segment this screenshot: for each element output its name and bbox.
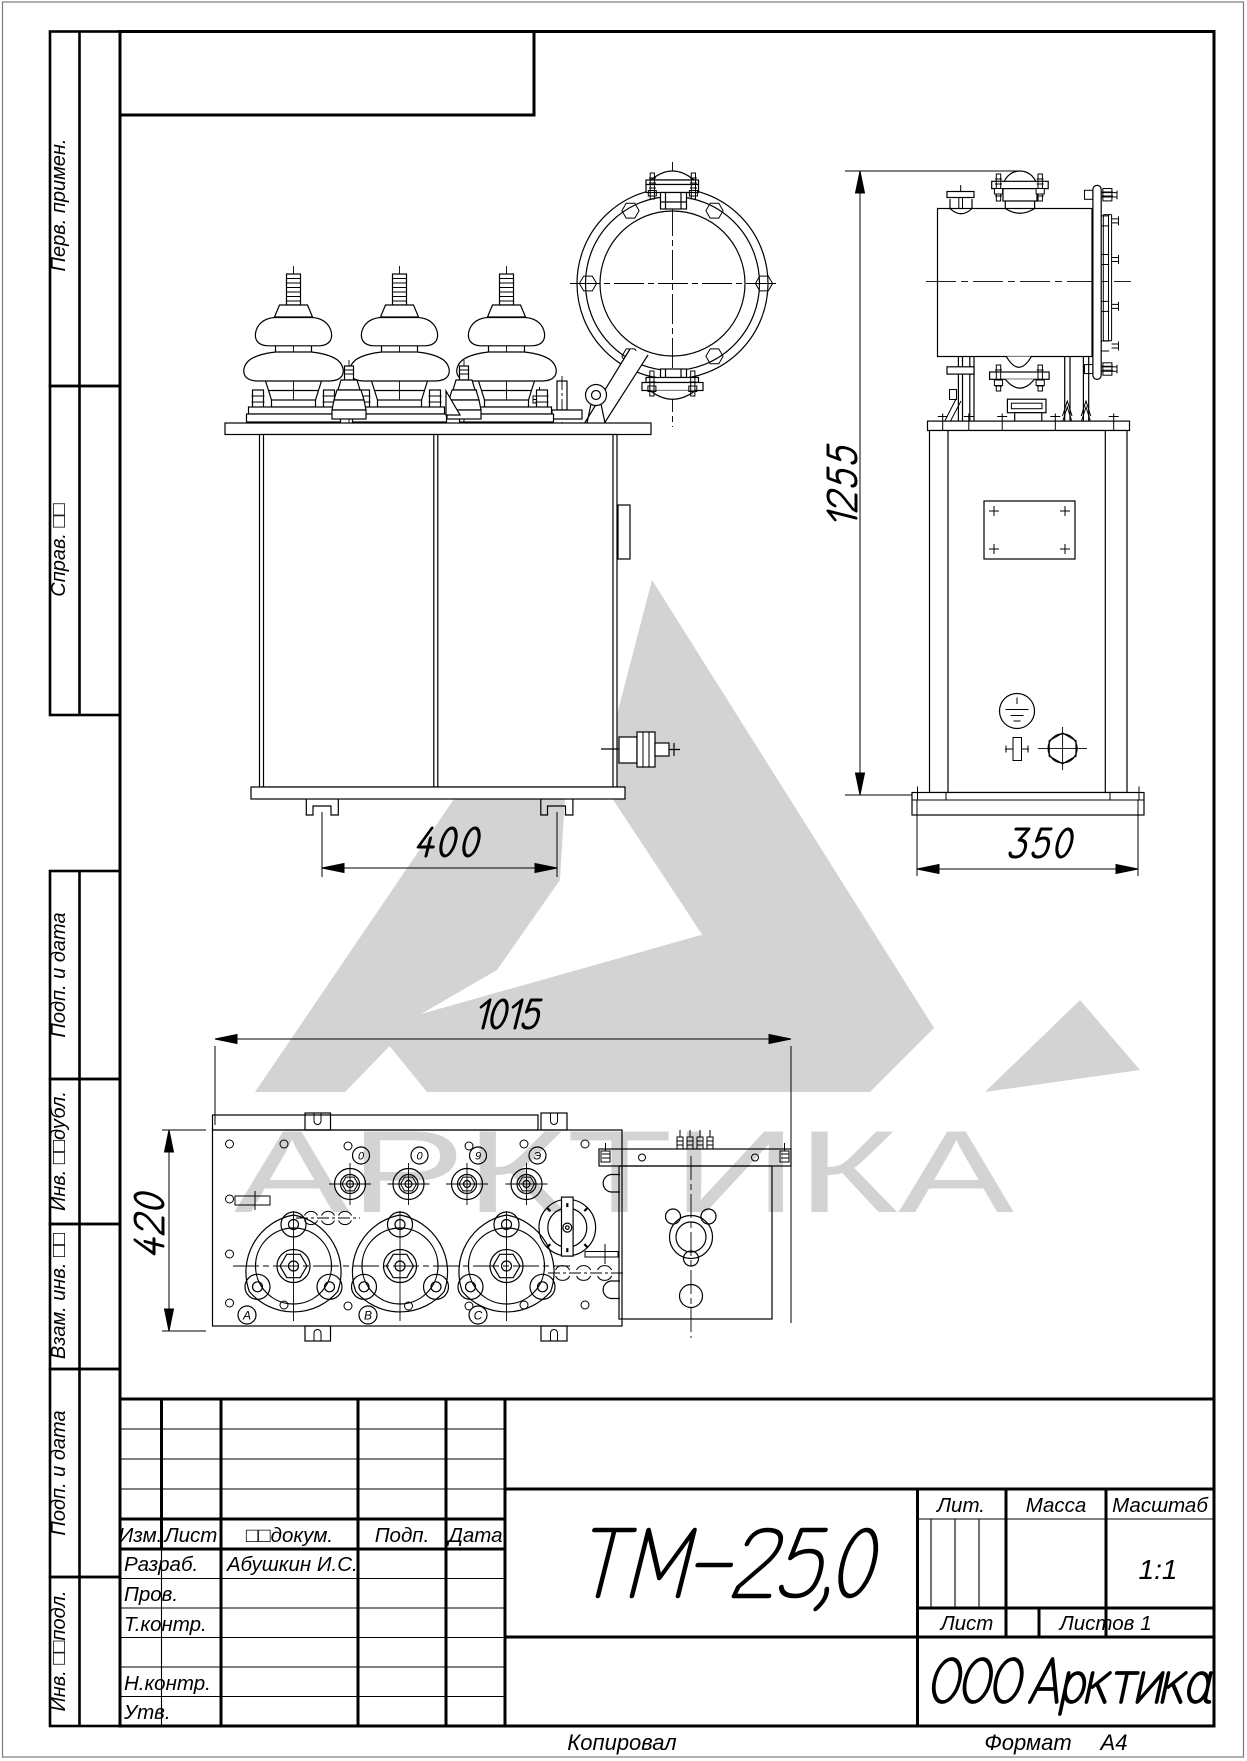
svg-text:Изм.: Изм. [119, 1524, 163, 1547]
svg-text:Лист: Лист [939, 1612, 994, 1635]
svg-text:Формат: Формат [984, 1730, 1071, 1755]
svg-text:Утв.: Утв. [123, 1701, 171, 1724]
svg-text:Н.контр.: Н.контр. [124, 1672, 211, 1695]
svg-text:Подп. и дата: Подп. и дата [48, 1410, 70, 1535]
svg-text:Лист: Лист [163, 1524, 218, 1547]
svg-text:1: 1 [1140, 1612, 1151, 1635]
svg-text:Пров.: Пров. [124, 1583, 178, 1606]
svg-text:Разраб.: Разраб. [124, 1553, 198, 1576]
svg-text:Инв. □□дубл.: Инв. □□дубл. [48, 1091, 70, 1211]
svg-text:Абушкин И.С.: Абушкин И.С. [225, 1553, 358, 1576]
svg-text:Копировал: Копировал [567, 1730, 676, 1755]
svg-text:1:1: 1:1 [1139, 1554, 1178, 1585]
svg-text:0: 0 [416, 1151, 423, 1163]
svg-text:Масса: Масса [1026, 1494, 1087, 1517]
svg-text:С: С [474, 1309, 483, 1323]
svg-text:Взам. инв. □□: Взам. инв. □□ [48, 1233, 70, 1359]
svg-text:А4: А4 [1099, 1730, 1128, 1755]
svg-text:Листов: Листов [1058, 1612, 1135, 1635]
svg-text:Подп. и дата: Подп. и дата [48, 912, 70, 1037]
svg-text:Дата: Дата [446, 1524, 502, 1547]
svg-text:□□докум.: □□докум. [246, 1524, 333, 1547]
svg-text:9: 9 [475, 1151, 481, 1163]
svg-text:Т.контр.: Т.контр. [124, 1613, 207, 1636]
svg-text:Э: Э [534, 1151, 542, 1163]
svg-text:Масштаб: Масштаб [1112, 1494, 1209, 1517]
svg-text:В: В [364, 1309, 372, 1323]
svg-text:Лит.: Лит. [935, 1494, 985, 1517]
svg-text:0: 0 [358, 1151, 365, 1163]
svg-text:Инв. □□подл.: Инв. □□подл. [48, 1590, 70, 1711]
svg-text:Справ. □□: Справ. □□ [48, 503, 70, 596]
svg-text:Перв. примен.: Перв. примен. [48, 139, 70, 272]
svg-text:АРКТИКА: АРКТИКА [234, 1106, 1014, 1237]
svg-text:А: А [242, 1309, 251, 1323]
svg-text:Подп.: Подп. [375, 1524, 430, 1547]
